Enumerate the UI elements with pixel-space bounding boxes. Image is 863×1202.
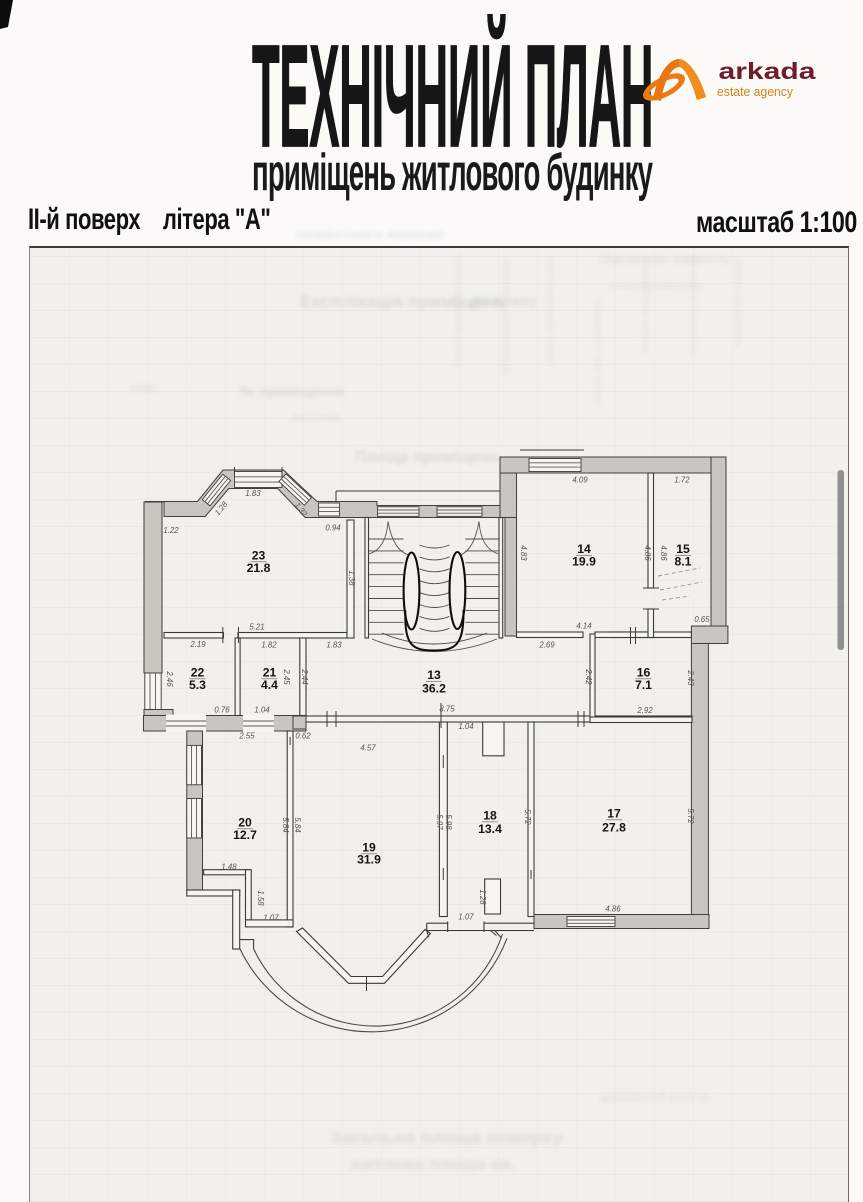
svg-text:1.48: 1.48 — [221, 863, 237, 872]
svg-text:1.04: 1.04 — [458, 722, 474, 731]
svg-text:1.83: 1.83 — [326, 641, 342, 650]
svg-text:5.84: 5.84 — [281, 817, 290, 833]
svg-text:4.09: 4.09 — [572, 476, 588, 485]
svg-text:0.94: 0.94 — [325, 524, 341, 533]
svg-text:8.75: 8.75 — [439, 705, 455, 714]
svg-text:5.84: 5.84 — [293, 817, 302, 833]
svg-text:12.7: 12.7 — [233, 828, 257, 842]
svg-text:5.72: 5.72 — [686, 808, 695, 824]
svg-text:5.72: 5.72 — [523, 809, 532, 825]
svg-text:4.86: 4.86 — [643, 545, 652, 561]
svg-text:1.22: 1.22 — [163, 526, 179, 535]
svg-text:4.86: 4.86 — [605, 905, 621, 914]
svg-text:27.8: 27.8 — [602, 821, 626, 835]
svg-text:1.07: 1.07 — [458, 913, 474, 922]
svg-text:31.9: 31.9 — [357, 853, 381, 867]
svg-text:0.65: 0.65 — [694, 615, 710, 624]
svg-text:0.62: 0.62 — [295, 732, 311, 741]
svg-text:13: 13 — [427, 668, 441, 682]
svg-text:1.83: 1.83 — [245, 489, 261, 498]
svg-text:8.1: 8.1 — [675, 555, 692, 569]
svg-text:1.07: 1.07 — [263, 914, 279, 923]
svg-text:4.4: 4.4 — [261, 678, 278, 692]
svg-text:36.2: 36.2 — [422, 682, 446, 696]
svg-text:4.14: 4.14 — [576, 622, 592, 631]
svg-text:5.3: 5.3 — [189, 678, 206, 692]
svg-text:2.19: 2.19 — [189, 640, 206, 649]
svg-text:1.38: 1.38 — [347, 570, 356, 586]
svg-text:5.98: 5.98 — [444, 814, 453, 830]
svg-text:17: 17 — [607, 807, 621, 821]
svg-text:2.92: 2.92 — [636, 706, 653, 715]
svg-text:1.58: 1.58 — [256, 890, 265, 906]
svg-text:2.44: 2.44 — [300, 668, 309, 685]
svg-text:19.9: 19.9 — [572, 555, 596, 569]
svg-text:2.43: 2.43 — [686, 669, 695, 686]
svg-text:21.8: 21.8 — [247, 561, 271, 575]
svg-text:2.45: 2.45 — [282, 668, 291, 685]
svg-text:2.46: 2.46 — [165, 670, 174, 687]
svg-text:4.83: 4.83 — [519, 545, 528, 561]
svg-text:1.82: 1.82 — [261, 641, 277, 650]
svg-text:0.76: 0.76 — [214, 706, 230, 715]
svg-text:2.69: 2.69 — [538, 641, 555, 650]
svg-text:1.04: 1.04 — [254, 706, 270, 715]
svg-text:1.72: 1.72 — [674, 476, 690, 485]
svg-text:13.4: 13.4 — [478, 822, 502, 836]
svg-text:2.55: 2.55 — [238, 732, 255, 741]
svg-text:1.28: 1.28 — [478, 889, 487, 905]
svg-text:5.97: 5.97 — [435, 814, 444, 830]
svg-text:7.1: 7.1 — [635, 678, 652, 692]
svg-text:2.42: 2.42 — [584, 668, 593, 685]
svg-text:18: 18 — [483, 809, 497, 823]
svg-text:4.86: 4.86 — [659, 545, 668, 561]
svg-text:5.21: 5.21 — [249, 623, 264, 632]
svg-text:4.57: 4.57 — [360, 744, 376, 753]
